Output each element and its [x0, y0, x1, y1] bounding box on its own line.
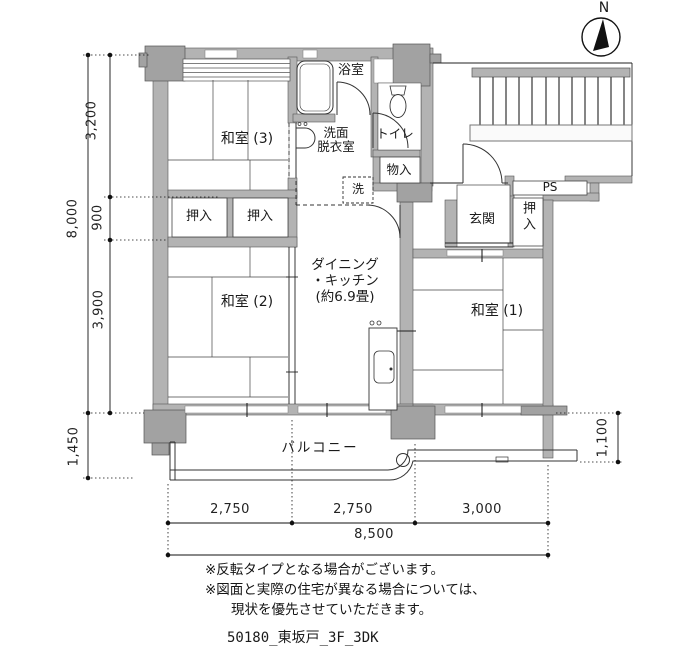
room-label-oshiire-left: 押入 [174, 210, 224, 225]
dim-left-3200: 3,200 [86, 94, 101, 146]
room-label-genkan: 玄関 [452, 213, 512, 228]
dim-left-1450: 1,450 [68, 420, 83, 472]
room-label-ps: PS [530, 181, 570, 195]
dim-left-3900: 3,900 [93, 283, 108, 335]
room-label-laundry: 洗 [348, 183, 368, 197]
room-label-balcony: バルコニー [260, 441, 380, 457]
note-line-2: ※図面と実際の住宅が異なる場合については、 [205, 583, 486, 599]
note-line-3: 現状を優先させていただきます。 [231, 603, 432, 619]
dim-right-1100: 1,100 [597, 411, 612, 463]
room-label-washitsu1: 和室 (1) [447, 303, 547, 319]
room-label-oshiire-mid: 押入 [235, 210, 285, 225]
room-label-washitsu3: 和室 (3) [197, 131, 297, 147]
room-label-oshiire-right: 押入 [519, 201, 534, 233]
room-label-bath: 浴室 [321, 64, 381, 79]
dim-bottom-3000: 3,000 [452, 503, 512, 518]
north-arrow-icon [582, 18, 620, 56]
room-label-storage: 物入 [369, 163, 429, 177]
note-line-1: ※反転タイプとなる場合がございます。 [205, 563, 444, 579]
dim-left-900: 900 [92, 197, 107, 237]
room-label-dining-kitchen: ダイニング ・キッチン (約6.9畳) [295, 257, 395, 305]
north-label: N [592, 0, 616, 16]
room-label-toilet: トイレ [360, 127, 430, 141]
floor-plan: N 和室 (3) 和室 (2) 和室 (1) 押入 押入 押入 浴室 洗面 脱衣… [0, 0, 700, 650]
room-label-washitsu2: 和室 (2) [197, 294, 297, 310]
louver-window [183, 59, 290, 81]
staircase [470, 68, 632, 141]
dim-left-8000: 8,000 [67, 192, 82, 244]
dim-bottom-2750-mid: 2,750 [323, 503, 383, 518]
dim-bottom-8500: 8,500 [344, 528, 404, 543]
plan-id-footer: 50180_東坂戸_3F_3DK [227, 630, 379, 646]
dim-bottom-2750-left: 2,750 [200, 503, 260, 518]
